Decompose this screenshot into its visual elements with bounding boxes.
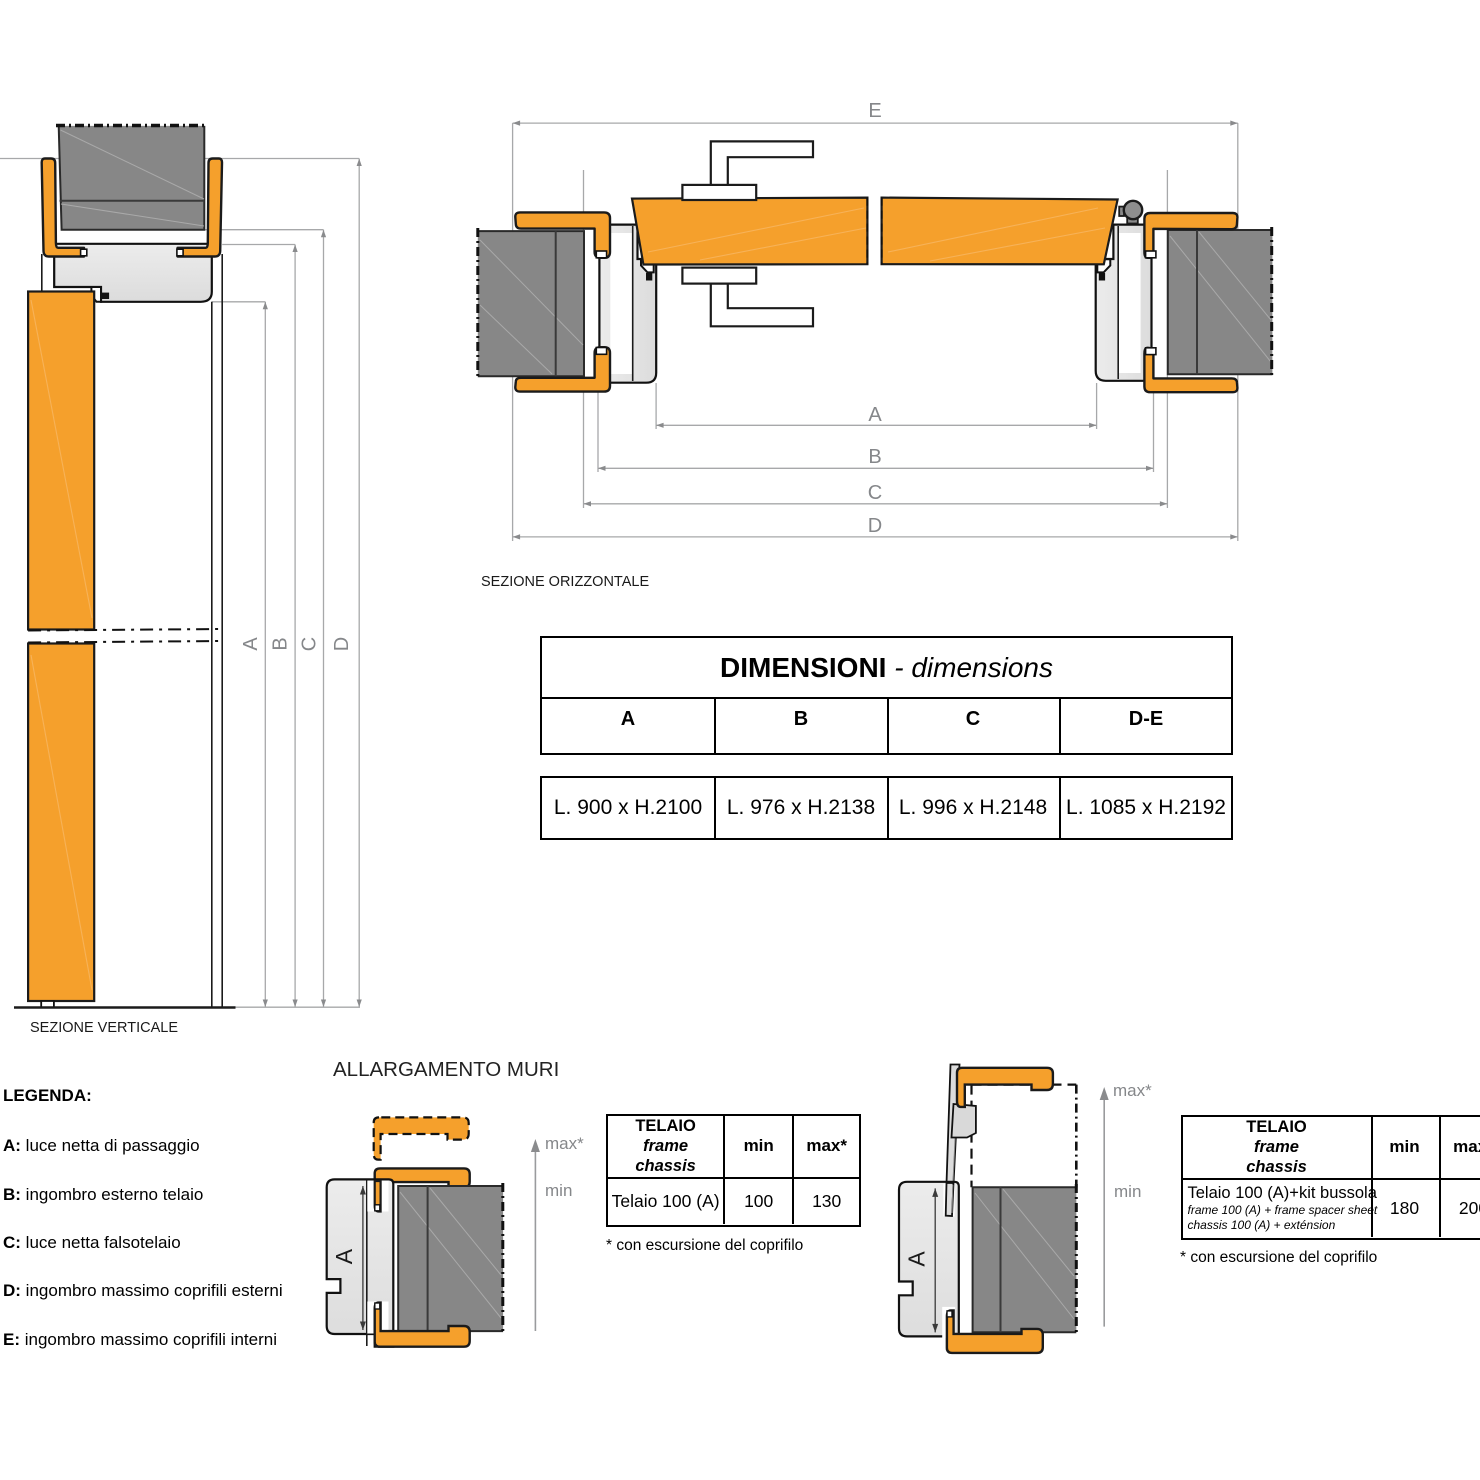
svg-text:SEZIONE ORIZZONTALE: SEZIONE ORIZZONTALE: [481, 574, 649, 590]
svg-text:C: C: [868, 482, 882, 504]
svg-text:min: min: [545, 1181, 572, 1200]
svg-text:B: B: [269, 637, 291, 650]
svg-text:D: D: [331, 637, 353, 651]
svg-text:A: A: [868, 404, 882, 426]
svg-text:SEZIONE VERTICALE: SEZIONE VERTICALE: [30, 1020, 178, 1036]
svg-text:A: A: [240, 637, 262, 651]
svg-text:min: min: [1114, 1182, 1141, 1201]
svg-text:A: A: [903, 1251, 929, 1267]
svg-text:D: D: [868, 515, 882, 537]
svg-text:B: B: [868, 446, 881, 468]
svg-text:E: E: [868, 100, 881, 122]
svg-text:max*: max*: [545, 1134, 584, 1153]
svg-text:A: A: [331, 1248, 357, 1264]
svg-text:max*: max*: [1113, 1081, 1152, 1100]
svg-text:C: C: [298, 637, 320, 651]
